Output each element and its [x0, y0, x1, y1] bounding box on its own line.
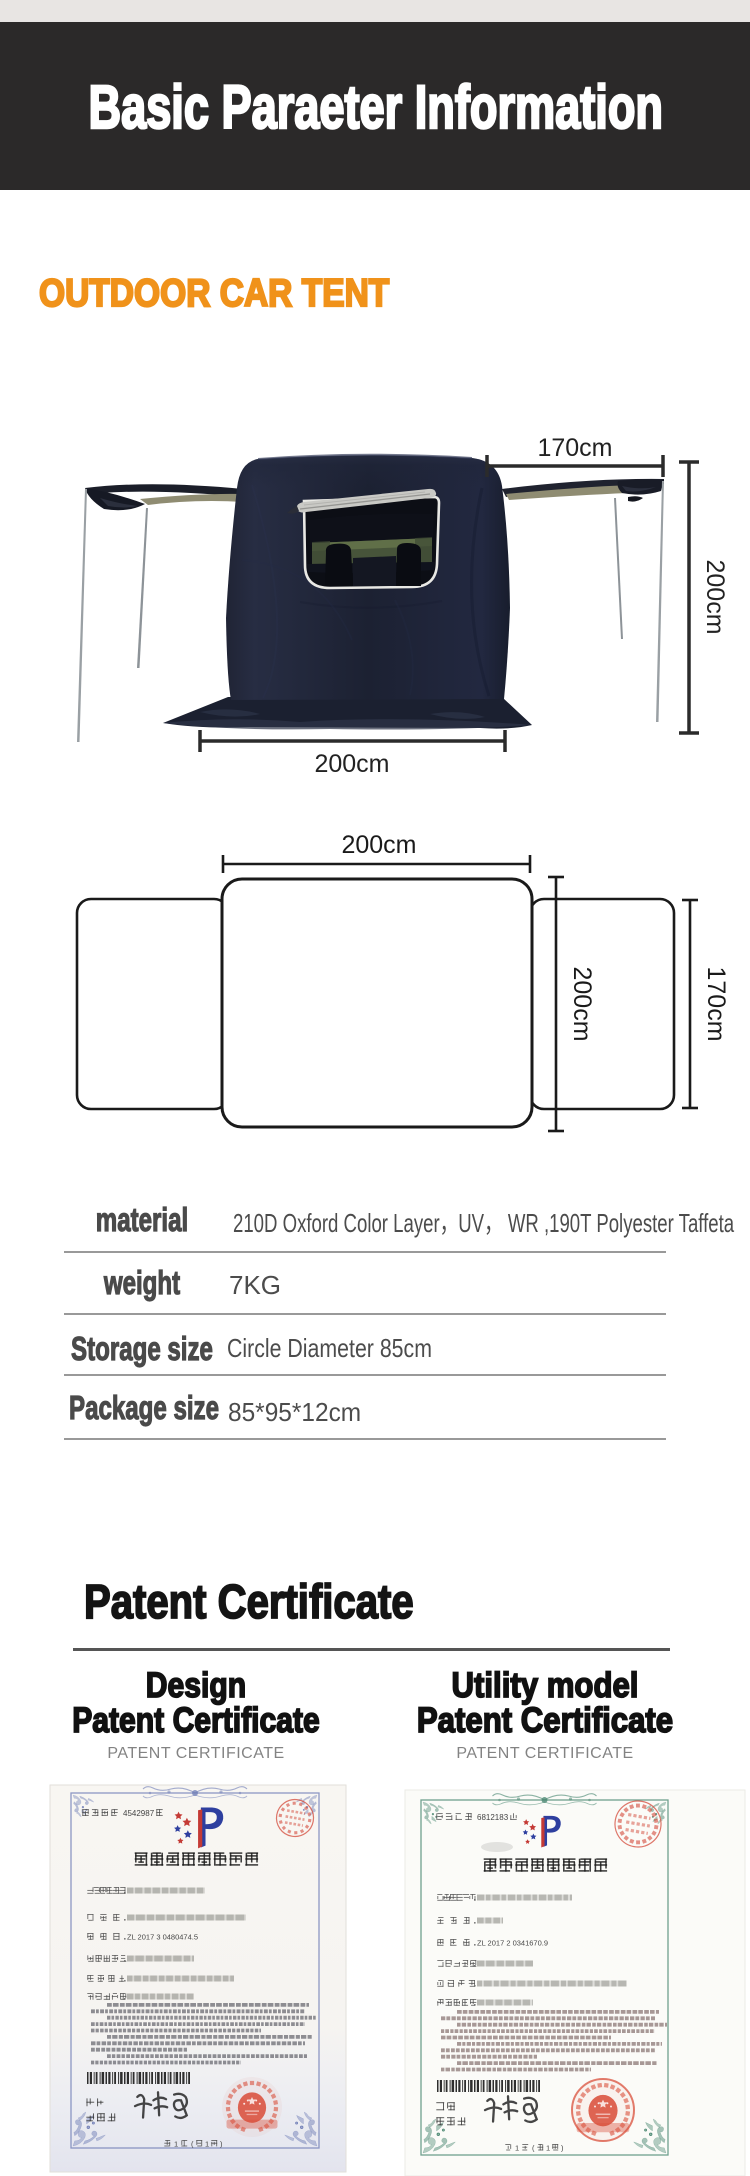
svg-text:200cm: 200cm [701, 559, 729, 634]
svg-text:1: 1 [515, 2144, 519, 2153]
svg-text:170cm: 170cm [702, 966, 730, 1041]
svg-text:ZL 2017 2 0341670.9: ZL 2017 2 0341670.9 [477, 1939, 548, 1948]
svg-text:1: 1 [546, 2144, 550, 2153]
svg-text:170cm: 170cm [537, 434, 612, 462]
svg-text:6812183: 6812183 [477, 1813, 509, 1822]
svg-text:200cm: 200cm [341, 831, 416, 859]
svg-text:200cm: 200cm [314, 750, 389, 778]
svg-text:200cm: 200cm [568, 966, 596, 1041]
